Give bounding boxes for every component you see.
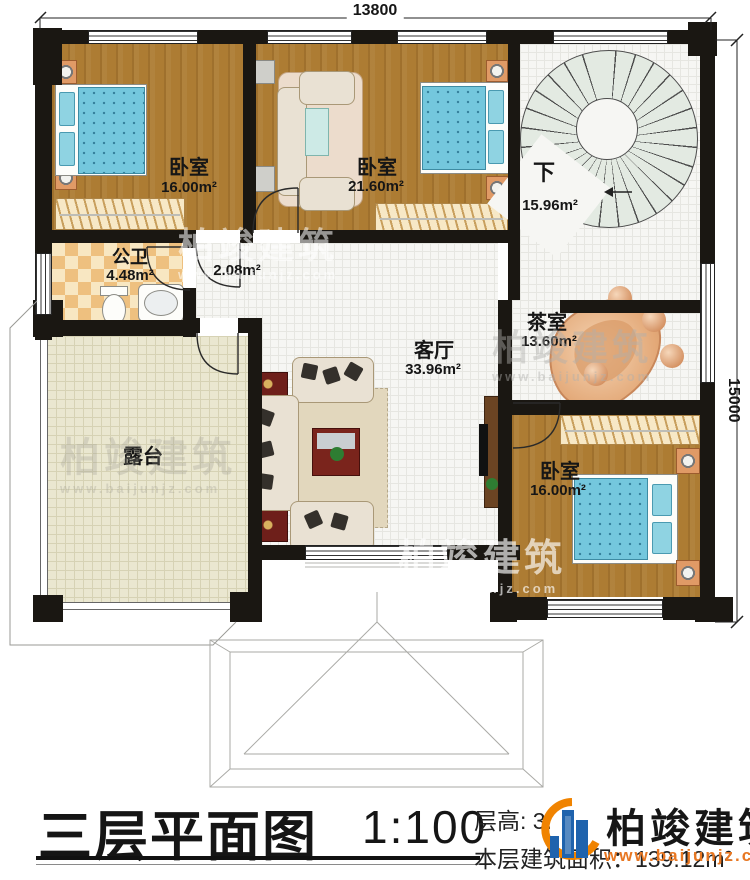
wall-segment (196, 318, 200, 333)
wall-segment (498, 400, 715, 415)
pillow (652, 484, 672, 516)
room-label-bedroom3: 卧室 (540, 462, 580, 482)
corridor-floor (196, 243, 248, 318)
floor-plan-page: 卧室 16.00m² 卧室 21.60m² 下 15.96m² 公卫 4.48m… (0, 0, 750, 880)
room-area-bedroom1: 16.00m² (161, 180, 217, 195)
scale-label: 1:100 (362, 800, 487, 854)
window (305, 545, 448, 560)
wall-segment (688, 22, 717, 56)
wall-segment (230, 592, 262, 622)
wall-segment (560, 300, 715, 313)
wall-segment (52, 230, 196, 243)
wall-segment (33, 28, 62, 85)
brand-website: www.baijunjz.com (604, 846, 750, 866)
plant-icon (486, 478, 498, 490)
staircase-eye (576, 98, 638, 160)
room-label-living: 客厅 (414, 341, 454, 361)
nightstand (676, 448, 700, 474)
title-rule (36, 856, 480, 860)
wall-segment (183, 243, 196, 248)
window (700, 263, 715, 383)
pillow (488, 130, 504, 164)
wall-segment (248, 545, 305, 560)
wall-segment (300, 230, 508, 243)
sink (144, 290, 178, 316)
coffee-table (305, 108, 329, 156)
pillow (652, 522, 672, 554)
dimension-top: 13800 (347, 3, 404, 19)
window (547, 599, 663, 618)
tv-icon (479, 424, 488, 476)
room-label-terrace: 露台 (123, 447, 163, 467)
wardrobe (560, 415, 700, 445)
room-area-tea: 13.60m² (521, 334, 577, 349)
room-label-bathroom: 公卫 (112, 248, 148, 266)
plant-icon (330, 447, 344, 461)
pillow (59, 92, 75, 126)
terrace-floor (47, 336, 248, 608)
stool (584, 362, 608, 386)
window (397, 30, 487, 44)
coffee-table (312, 428, 360, 476)
window (267, 30, 352, 44)
terrace-railing (40, 602, 234, 610)
wall-segment (498, 412, 512, 622)
wall-segment (448, 545, 520, 560)
stairs-direction-label: 下 (533, 162, 555, 184)
wall-segment (498, 597, 547, 620)
window (35, 253, 52, 315)
sofa (300, 72, 354, 104)
stairs-area: 15.96m² (522, 198, 578, 213)
wall-segment (240, 230, 253, 243)
room-label-bedroom1: 卧室 (169, 158, 209, 178)
wall-segment (508, 44, 520, 300)
wall-segment (248, 318, 262, 622)
wall-segment (238, 318, 248, 333)
brand-logo-icon (540, 796, 604, 876)
wardrobe (375, 203, 508, 233)
mattress (422, 86, 486, 170)
room-label-bedroom2: 卧室 (357, 158, 397, 178)
room-area-living: 33.96m² (405, 362, 461, 377)
room-area-bedroom3: 16.00m² (530, 483, 586, 498)
wall-segment (243, 44, 256, 230)
brand-logo (540, 796, 604, 876)
wall-segment (695, 597, 733, 622)
terrace-railing (40, 336, 48, 608)
sofa (300, 178, 354, 210)
pillow (488, 90, 504, 124)
dimension-right: 15000 (724, 378, 742, 423)
wall-segment (33, 595, 63, 622)
corridor-area: 2.08m² (213, 263, 261, 278)
stool (660, 344, 684, 368)
title-rule-thin (36, 864, 488, 865)
pillow (59, 132, 75, 166)
room-area-bathroom: 4.48m² (106, 268, 154, 283)
nightstand (676, 560, 700, 586)
room-area-bedroom2: 21.60m² (348, 179, 404, 194)
side-table (253, 166, 275, 192)
side-table (253, 60, 275, 84)
wardrobe (55, 198, 185, 230)
window (553, 30, 668, 44)
room-label-tea: 茶室 (527, 313, 567, 333)
nightstand (486, 60, 508, 82)
mattress (78, 87, 145, 174)
cushion (301, 363, 319, 381)
corridor-floor (248, 243, 262, 318)
window (88, 30, 198, 44)
